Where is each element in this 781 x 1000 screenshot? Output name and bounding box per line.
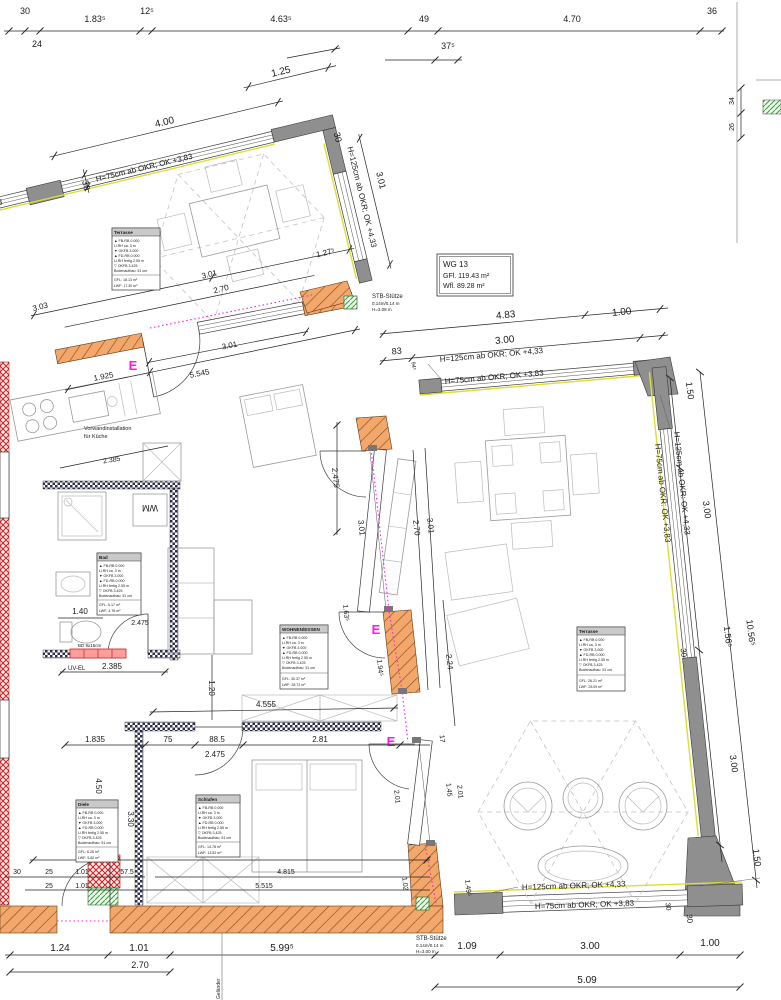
svg-text:5.515: 5.515 <box>255 883 273 890</box>
svg-text:▲ FD-RB 0.000: ▲ FD-RB 0.000 <box>198 821 224 825</box>
svg-text:2.01: 2.01 <box>455 785 463 799</box>
sofa <box>214 600 252 654</box>
dim: 4.00 <box>154 115 176 130</box>
wall-red <box>0 362 9 905</box>
svg-text:LWF: 4.76 m²: LWF: 4.76 m² <box>99 609 121 613</box>
unit-id: WG 13 <box>443 260 468 269</box>
svg-text:5.09: 5.09 <box>577 975 597 986</box>
svg-text:Li.RH fertig 2.55 m: Li.RH fertig 2.55 m <box>78 831 108 835</box>
svg-text:1.20: 1.20 <box>207 680 216 696</box>
svg-text:1.40: 1.40 <box>72 607 88 616</box>
svg-text:▽ OKFB 3.425: ▽ OKFB 3.425 <box>198 831 222 835</box>
sideboard <box>379 459 416 595</box>
dining-table <box>485 435 570 520</box>
svg-text:3.01: 3.01 <box>221 340 239 352</box>
dim: 24 <box>32 39 42 49</box>
svg-text:▲ FB-RB 0.000: ▲ FB-RB 0.000 <box>99 564 124 568</box>
svg-text:▼ OKFB 3.000: ▼ OKFB 3.000 <box>579 648 603 652</box>
gelaender-label: Geländer <box>216 978 222 999</box>
svg-text:3.01: 3.01 <box>356 520 367 537</box>
svg-text:2.70: 2.70 <box>411 520 422 537</box>
chair <box>276 185 311 223</box>
svg-text:▼ OKFB 3.000: ▼ OKFB 3.000 <box>282 646 306 650</box>
svg-text:▽ OKFB 3.425: ▽ OKFB 3.425 <box>114 264 138 268</box>
svg-text:▲ FD-RB 0.000: ▲ FD-RB 0.000 <box>99 579 125 583</box>
svg-text:1.50: 1.50 <box>751 848 763 867</box>
svg-text:4.83: 4.83 <box>495 309 516 322</box>
dim: 30 <box>20 6 30 16</box>
daybed <box>240 385 317 468</box>
svg-text:GFL: 6.26 m²: GFL: 6.26 m² <box>78 850 100 854</box>
stove-burner <box>22 402 37 417</box>
svg-text:1.01: 1.01 <box>129 943 149 954</box>
svg-text:Li.RH ca. 3 m: Li.RH ca. 3 m <box>579 643 601 647</box>
dim: 3.01 <box>201 268 219 281</box>
dim: 1.83⁵ <box>84 14 106 24</box>
wc <box>71 621 101 643</box>
dim: 12⁵ <box>140 6 154 16</box>
dim: 30 <box>80 179 92 191</box>
stb-column <box>344 296 357 309</box>
dim: 3.03 <box>32 301 50 314</box>
terrace-top-left: 4.00 1.25 30 30 3.01 3.01 2.70 3.03 1.27… <box>0 49 409 388</box>
svg-text:Bodenaufbau: 51 cm: Bodenaufbau: 51 cm <box>282 666 315 670</box>
svg-text:Bad: Bad <box>99 555 108 560</box>
wc-tank <box>60 622 72 642</box>
chair <box>157 213 192 251</box>
entrance-marker: E <box>129 358 138 373</box>
svg-text:Bodenaufbau: 51 cm: Bodenaufbau: 51 cm <box>198 836 231 840</box>
svg-text:1.835: 1.835 <box>85 735 106 744</box>
svg-text:5.545: 5.545 <box>189 367 211 380</box>
svg-text:1.50: 1.50 <box>684 381 696 400</box>
svg-text:1.09: 1.09 <box>457 941 477 952</box>
svg-text:Bodenaufbau: 51 cm: Bodenaufbau: 51 cm <box>579 668 612 672</box>
svg-text:25: 25 <box>45 869 53 876</box>
unit-wfl: Wfl. 89.28 m² <box>443 283 485 290</box>
svg-text:LWF: 25.09 m²: LWF: 25.09 m² <box>579 685 603 689</box>
svg-text:3.01: 3.01 <box>425 518 436 535</box>
unit-info-box: WG 13 GFl. 119.43 m² Wfl. 89.28 m² <box>437 254 513 296</box>
svg-text:Li.RH ca. 3 m: Li.RH ca. 3 m <box>198 811 220 815</box>
svg-text:3.30: 3.30 <box>126 811 135 827</box>
svg-text:Li.RH ca. 3 m: Li.RH ca. 3 m <box>114 244 136 248</box>
svg-text:2.385: 2.385 <box>103 456 122 466</box>
column-green <box>88 888 118 905</box>
svg-text:▼ OKFB 3.000: ▼ OKFB 3.000 <box>114 249 138 253</box>
svg-text:LWF: 13.52 m²: LWF: 13.52 m² <box>198 851 222 855</box>
svg-text:1.45: 1.45 <box>444 783 452 797</box>
dim: 34 <box>729 97 736 105</box>
svg-text:Li.RH fertig 2.55 m: Li.RH fertig 2.55 m <box>282 656 312 660</box>
svg-text:▽ OKFB 3.425: ▽ OKFB 3.425 <box>99 589 123 593</box>
svg-text:Li.RH fertig 2.55 m: Li.RH fertig 2.55 m <box>579 658 609 662</box>
svg-text:4.815: 4.815 <box>277 869 295 876</box>
uv-el-label: UV-EL <box>68 666 86 672</box>
svg-text:10.56⁵: 10.56⁵ <box>744 619 757 647</box>
stove-burner <box>25 419 40 434</box>
dim: 49 <box>419 14 429 24</box>
svg-text:1.01: 1.01 <box>75 883 89 890</box>
svg-text:▽ OKFB 3.425: ▽ OKFB 3.425 <box>282 661 306 665</box>
chair <box>570 453 599 495</box>
svg-text:Li.RH fertig 2.55 m: Li.RH fertig 2.55 m <box>114 259 144 263</box>
svg-text:Li.RH ca. 3 m: Li.RH ca. 3 m <box>78 816 100 820</box>
svg-text:GFL: 30.37 m²: GFL: 30.37 m² <box>282 677 306 681</box>
svg-text:▲ FB-RB 0.000: ▲ FB-RB 0.000 <box>198 806 223 810</box>
svg-text:75: 75 <box>164 735 173 744</box>
stb-column <box>416 897 429 910</box>
svg-text:4.555: 4.555 <box>256 700 277 709</box>
svg-text:94⁵: 94⁵ <box>410 361 418 370</box>
chair <box>205 160 242 193</box>
unit-gfl: GFl. 119.43 m² <box>443 273 490 280</box>
svg-text:30: 30 <box>684 914 694 924</box>
svg-text:Li.RH ca. 3 m: Li.RH ca. 3 m <box>282 641 304 645</box>
svg-text:1.24: 1.24 <box>50 943 70 954</box>
svg-text:30: 30 <box>663 902 671 911</box>
dim-chain-top: 30 24 1.83⁵ 12⁵ 4.63⁵ 49 37⁵ 4.70 36 <box>4 6 726 64</box>
room-stamp-schlafen: Schlafen ▲ FB-RB 0.000 Li.RH ca. 3 m ▼ O… <box>196 795 240 857</box>
entrance-marker: E <box>372 622 381 637</box>
wm-label: WM <box>142 503 158 513</box>
room-stamp-diele: Diele ▲ FB-RB 0.000 Li.RH ca. 3 m ▼ OKFB… <box>76 800 118 862</box>
svg-text:2.475: 2.475 <box>330 467 341 488</box>
sheet-edge: 34 26 <box>729 2 781 243</box>
svg-text:H=3.00 m: H=3.00 m <box>416 949 436 954</box>
svg-text:2.81: 2.81 <box>312 735 328 744</box>
chair <box>227 249 264 282</box>
svg-text:3.00: 3.00 <box>701 500 713 519</box>
svg-text:57.5: 57.5 <box>120 869 134 876</box>
svg-text:▲ FB-RB 0.000: ▲ FB-RB 0.000 <box>579 638 604 642</box>
svg-text:1.925: 1.925 <box>93 370 115 383</box>
svg-text:Schlafen: Schlafen <box>198 797 217 802</box>
window-height-label: H=125cm ab OKR; OK +4,33 <box>522 879 626 892</box>
svg-text:▲ FD-RB 0.000: ▲ FD-RB 0.000 <box>78 826 104 830</box>
dim: 36 <box>707 6 717 16</box>
svg-text:3.00: 3.00 <box>494 334 515 347</box>
window-height-label: H=125cm ab OKR; OK +4,33 <box>439 346 544 364</box>
svg-text:H=3.08 m: H=3.08 m <box>372 307 392 312</box>
dim: 37⁵ <box>441 41 455 51</box>
chair <box>503 407 545 436</box>
lounger <box>447 598 529 666</box>
svg-text:▼ OKFB 3.000: ▼ OKFB 3.000 <box>99 574 123 578</box>
svg-text:1.02: 1.02 <box>400 877 408 891</box>
kitchen-sink <box>69 391 109 422</box>
stb-note: STB-Stütze <box>372 294 403 300</box>
svg-text:Terrasse: Terrasse <box>114 230 133 235</box>
svg-text:3.00: 3.00 <box>728 754 740 773</box>
svg-text:GFL: 18.13 m²: GFL: 18.13 m² <box>114 278 138 282</box>
svg-text:Bodenaufbau: 51 cm: Bodenaufbau: 51 cm <box>114 269 147 273</box>
svg-text:▽ OKFB 3.425: ▽ OKFB 3.425 <box>579 663 603 667</box>
svg-text:83: 83 <box>391 346 402 357</box>
svg-text:1.00: 1.00 <box>611 306 632 319</box>
lounger <box>445 544 513 600</box>
svg-text:GFL: 14.78 m²: GFL: 14.78 m² <box>198 845 222 849</box>
dim: 26 <box>729 123 736 131</box>
stb-note: STB-Stütze <box>416 936 447 942</box>
svg-text:▼ OKFB 3.000: ▼ OKFB 3.000 <box>198 816 222 820</box>
svg-text:25: 25 <box>45 883 53 890</box>
svg-text:1.63⁵: 1.63⁵ <box>341 604 350 621</box>
round-chair <box>504 782 552 830</box>
svg-text:2.01: 2.01 <box>392 790 400 804</box>
entrance-marker: E <box>387 734 396 749</box>
svg-text:0.14m/0.14 m: 0.14m/0.14 m <box>372 301 400 306</box>
svg-text:GFL: 26.21 m²: GFL: 26.21 m² <box>579 679 603 683</box>
svg-text:1.00: 1.00 <box>700 938 720 949</box>
svg-text:Terrasse: Terrasse <box>579 629 598 634</box>
svg-text:LWF: 28.72 m²: LWF: 28.72 m² <box>282 683 306 687</box>
dim: 1.27⁵ <box>315 246 335 259</box>
legend-green-hatch <box>763 100 781 114</box>
svg-text:Li.RH fertig 2.55 m: Li.RH fertig 2.55 m <box>99 584 129 588</box>
svg-text:▲ FD-RB 0.000: ▲ FD-RB 0.000 <box>579 653 605 657</box>
svg-text:30: 30 <box>678 648 688 658</box>
svg-text:LWF: 17.30 m²: LWF: 17.30 m² <box>114 284 138 288</box>
svg-text:17: 17 <box>438 735 446 744</box>
dim: 3.01 <box>374 171 388 190</box>
room-stamp-wohnen: WOHNEN/ESSEN ▲ FB-RB 0.000 Li.RH ca. 3 m… <box>280 625 328 689</box>
bd-label: BD 9x15cm <box>78 643 102 648</box>
svg-text:2.385: 2.385 <box>102 662 123 671</box>
svg-text:2.475: 2.475 <box>205 750 226 759</box>
svg-text:▲ FD-RB 0.000: ▲ FD-RB 0.000 <box>282 651 308 655</box>
round-chair <box>619 782 667 830</box>
chair <box>455 461 484 503</box>
svg-text:Li.RH fertig 2.55 m: Li.RH fertig 2.55 m <box>198 826 228 830</box>
chair <box>511 520 553 549</box>
floorplan-canvas: 4.00 1.25 30 30 3.01 3.01 2.70 3.03 1.27… <box>0 0 781 1000</box>
terrace-table <box>189 185 280 257</box>
svg-text:Bodenaufbau: 51 cm: Bodenaufbau: 51 cm <box>99 594 132 598</box>
svg-text:GFL: 5.17 m²: GFL: 5.17 m² <box>99 603 121 607</box>
svg-text:Li.RH ca. 3 m: Li.RH ca. 3 m <box>99 569 121 573</box>
svg-text:Bodenaufbau: 51 cm: Bodenaufbau: 51 cm <box>78 841 111 845</box>
svg-text:4.50: 4.50 <box>94 778 103 794</box>
svg-text:1.94⁵: 1.94⁵ <box>375 659 384 676</box>
round-table <box>563 778 603 818</box>
svg-text:LWF: 5.82 m²: LWF: 5.82 m² <box>78 856 100 860</box>
svg-text:▽ OKFB 3.425: ▽ OKFB 3.425 <box>78 836 102 840</box>
dim: 4.70 <box>563 14 581 24</box>
svg-text:▼ OKFB 3.000: ▼ OKFB 3.000 <box>78 821 102 825</box>
svg-text:▲ FB-RB 0.000: ▲ FB-RB 0.000 <box>114 239 139 243</box>
room-stamp-bad: Bad ▲ FB-RB 0.000 Li.RH ca. 3 m ▼ OKFB 3… <box>97 553 141 615</box>
wall-pier <box>26 180 64 205</box>
svg-text:1.56⁵: 1.56⁵ <box>722 625 735 648</box>
svg-text:für Küche: für Küche <box>84 434 108 440</box>
svg-text:88.5: 88.5 <box>209 735 225 744</box>
vorwand-label: Vorwandinstallation <box>84 426 131 432</box>
svg-text:▲ FD-RB 0.000: ▲ FD-RB 0.000 <box>114 254 140 258</box>
svg-text:2.24: 2.24 <box>444 654 455 671</box>
dim: 4.63⁵ <box>270 14 292 24</box>
svg-text:2.70: 2.70 <box>131 960 149 970</box>
svg-text:▲ FB-RB 0.000: ▲ FB-RB 0.000 <box>282 636 307 640</box>
svg-text:WOHNEN/ESSEN: WOHNEN/ESSEN <box>282 627 320 632</box>
svg-text:30: 30 <box>13 869 21 876</box>
svg-text:5.99⁵: 5.99⁵ <box>270 943 294 954</box>
svg-text:0.14m/0.14 m: 0.14m/0.14 m <box>416 943 444 948</box>
room-stamp-terrasse-right: Terrasse ▲ FB-RB 0.000 Li.RH ca. 3 m ▼ O… <box>577 627 625 691</box>
svg-text:Diele: Diele <box>78 802 89 807</box>
dim: 1.25 <box>270 64 292 79</box>
svg-text:2.475: 2.475 <box>131 620 149 627</box>
svg-text:3.00: 3.00 <box>580 941 600 952</box>
svg-text:1.01: 1.01 <box>75 869 89 876</box>
room-stamp-terrasse-top: Terrasse ▲ FB-RB 0.000 Li.RH ca. 3 m ▼ O… <box>112 228 160 290</box>
floorplan-sheet: 4.00 1.25 30 30 3.01 3.01 2.70 3.03 1.27… <box>0 0 781 1000</box>
svg-text:▲ FB-RB 0.000: ▲ FB-RB 0.000 <box>78 811 103 815</box>
